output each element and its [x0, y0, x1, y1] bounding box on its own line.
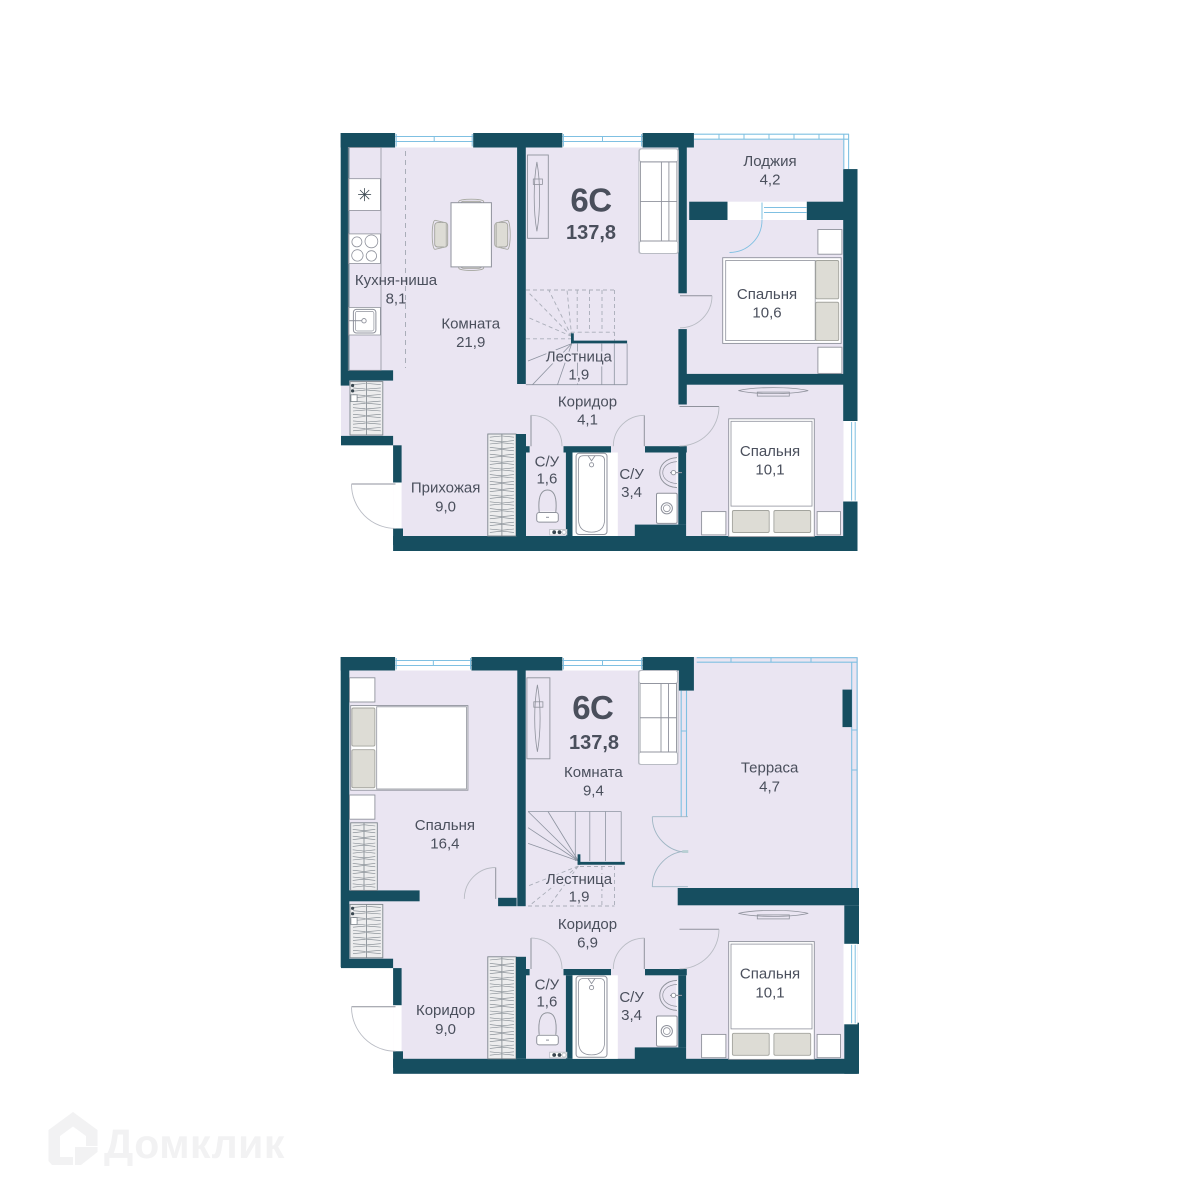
- svg-text:Лестница: Лестница: [546, 871, 613, 888]
- svg-text:3,4: 3,4: [621, 1007, 642, 1024]
- svg-text:Коридор: Коридор: [558, 916, 617, 933]
- svg-text:9,4: 9,4: [583, 783, 604, 800]
- svg-text:6,9: 6,9: [577, 934, 598, 951]
- svg-text:4,1: 4,1: [577, 412, 598, 429]
- svg-text:Лоджия: Лоджия: [743, 153, 796, 170]
- svg-text:Коридор: Коридор: [416, 1002, 475, 1019]
- svg-text:6С: 6С: [572, 689, 613, 726]
- svg-text:С/У: С/У: [535, 454, 560, 471]
- svg-text:4,7: 4,7: [759, 778, 780, 795]
- svg-text:3,4: 3,4: [621, 484, 642, 501]
- svg-text:21,9: 21,9: [456, 334, 485, 351]
- svg-text:137,8: 137,8: [566, 222, 616, 244]
- svg-text:Комната: Комната: [564, 764, 623, 781]
- svg-text:С/У: С/У: [619, 989, 644, 1006]
- svg-text:4,2: 4,2: [760, 172, 781, 189]
- svg-text:1,9: 1,9: [569, 889, 590, 906]
- svg-text:Спальня: Спальня: [740, 966, 800, 983]
- svg-text:10,6: 10,6: [752, 305, 781, 322]
- svg-text:Спальня: Спальня: [737, 286, 797, 303]
- svg-text:Кухня-ниша: Кухня-ниша: [355, 272, 438, 289]
- svg-text:С/У: С/У: [535, 976, 560, 993]
- svg-text:16,4: 16,4: [430, 836, 459, 853]
- svg-text:Комната: Комната: [441, 316, 500, 333]
- svg-text:1,6: 1,6: [536, 471, 557, 488]
- svg-text:137,8: 137,8: [569, 732, 619, 754]
- svg-text:8,1: 8,1: [386, 291, 407, 308]
- svg-text:Спальня: Спальня: [415, 817, 475, 834]
- svg-text:Коридор: Коридор: [558, 393, 617, 410]
- svg-text:С/У: С/У: [619, 466, 644, 483]
- svg-text:Лестница: Лестница: [546, 349, 613, 366]
- svg-text:10,1: 10,1: [755, 984, 784, 1001]
- svg-text:10,1: 10,1: [755, 462, 784, 479]
- svg-text:1,6: 1,6: [536, 993, 557, 1010]
- svg-text:Спальня: Спальня: [740, 443, 800, 460]
- svg-text:Прихожая: Прихожая: [411, 479, 481, 496]
- svg-text:1,9: 1,9: [568, 367, 589, 384]
- svg-text:6С: 6С: [570, 182, 611, 219]
- svg-text:9,0: 9,0: [435, 1021, 456, 1038]
- svg-text:9,0: 9,0: [435, 498, 456, 515]
- svg-text:Домклик: Домклик: [104, 1121, 285, 1167]
- svg-text:Терраса: Терраса: [741, 760, 799, 777]
